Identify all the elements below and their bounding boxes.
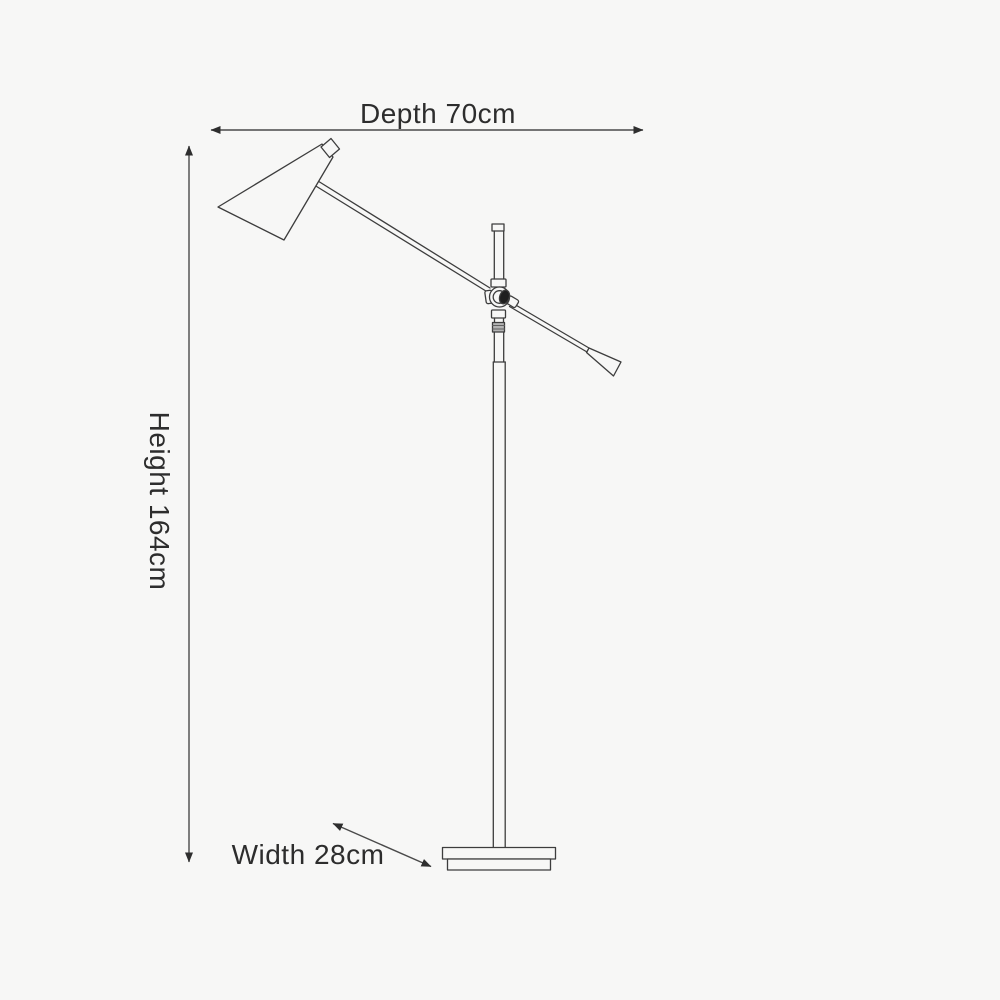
lamp-arm [315, 181, 621, 376]
height-dimension-label: Height 164cm [143, 412, 175, 591]
lamp-pole [491, 224, 506, 848]
depth-dimension-label: Depth 70cm [360, 98, 516, 130]
arm-handle-tip [587, 348, 622, 376]
adjustment-band [493, 323, 505, 333]
width-dimension-label: Width 28cm [232, 839, 385, 871]
lamp-base [443, 848, 556, 871]
pivot-joint [485, 287, 520, 308]
dimension-diagram: Depth 70cm Height 164cm Width 28cm [0, 0, 1000, 1000]
